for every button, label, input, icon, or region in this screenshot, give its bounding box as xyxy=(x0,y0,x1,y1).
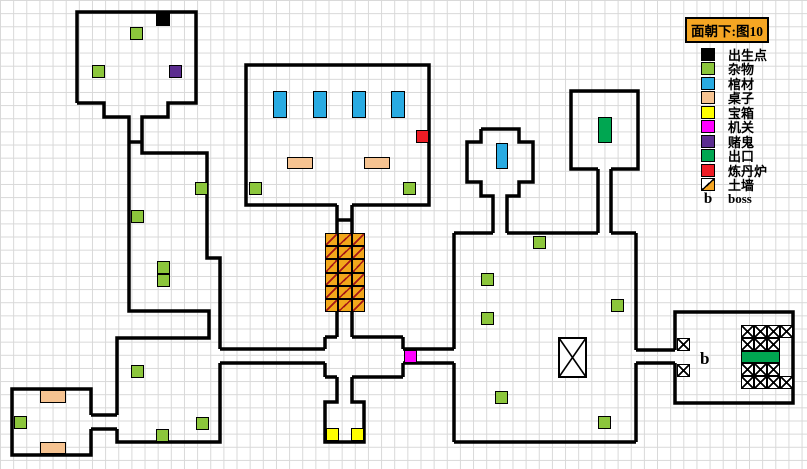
legend-row-boss: bboss xyxy=(686,192,767,207)
crate-x-cell xyxy=(767,376,780,389)
crate-x-cell xyxy=(767,363,780,376)
legend-swatch-table xyxy=(701,91,715,104)
crate-x-cell xyxy=(754,325,767,338)
crate-x-cell xyxy=(677,338,690,351)
crate-x-cell xyxy=(767,338,780,351)
crate-x-cell xyxy=(780,325,793,338)
legend-row-furnace: 炼丹炉 xyxy=(686,163,767,178)
crate-x-cell xyxy=(741,376,754,389)
crate-x-cell xyxy=(677,364,690,377)
legend-entries: 出生点杂物棺材桌子宝箱机关赌鬼出口炼丹炉土墙bboss xyxy=(686,47,767,207)
legend-label-boss: boss xyxy=(728,191,752,207)
legend-title: 面朝下:图10 xyxy=(685,17,769,43)
crate-x-cell xyxy=(754,363,767,376)
legend-row-table: 桌子 xyxy=(686,91,767,106)
legend-swatch-coffin xyxy=(701,77,715,90)
crate-x-cell xyxy=(741,338,754,351)
legend-row-mechanism: 机关 xyxy=(686,120,767,135)
crate-x-cell xyxy=(754,338,767,351)
crate-x-cell xyxy=(767,325,780,338)
legend-swatch-boss: b xyxy=(701,193,715,206)
legend-swatch-sundries xyxy=(701,62,715,75)
map-canvas: b 面朝下:图10 出生点杂物棺材桌子宝箱机关赌鬼出口炼丹炉土墙bboss xyxy=(0,0,807,469)
legend-swatch-mechanism xyxy=(701,120,715,133)
crate-x-cell xyxy=(741,325,754,338)
crate-x-cell xyxy=(780,376,793,389)
boss-marker: b xyxy=(700,349,709,369)
legend-row-coffin: 棺材 xyxy=(686,76,767,91)
crate-x-cell xyxy=(754,376,767,389)
legend-row-chest: 宝箱 xyxy=(686,105,767,120)
legend-swatch-gambler xyxy=(701,135,715,148)
crate-x-cell xyxy=(741,363,754,376)
legend-swatch-exit xyxy=(701,149,715,162)
legend-swatch-spawn xyxy=(701,48,715,61)
legend-swatch-earthwall xyxy=(701,178,715,191)
legend-row-spawn: 出生点 xyxy=(686,47,767,62)
legend-row-gambler: 赌鬼 xyxy=(686,134,767,149)
legend-swatch-chest xyxy=(701,106,715,119)
legend-swatch-furnace xyxy=(701,164,715,177)
